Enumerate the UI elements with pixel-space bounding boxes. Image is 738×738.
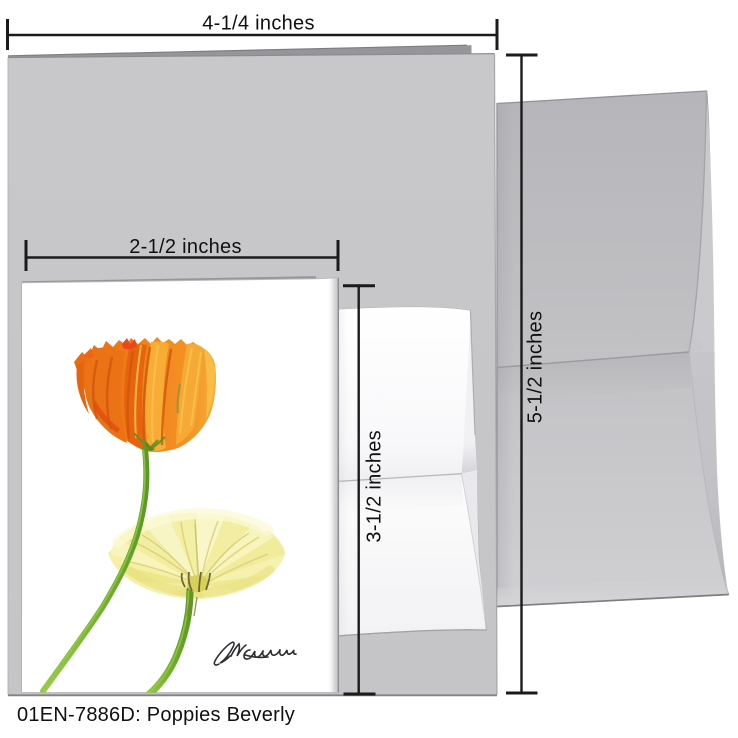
svg-text:3-1/2 inches: 3-1/2 inches [364, 430, 386, 543]
svg-text:2-1/2 inches: 2-1/2 inches [129, 236, 242, 258]
svg-text:5-1/2 inches: 5-1/2 inches [525, 311, 547, 424]
svg-text:01EN-7886D: Poppies Beverly: 01EN-7886D: Poppies Beverly [17, 704, 295, 726]
svg-text:4-1/4 inches: 4-1/4 inches [202, 13, 315, 35]
